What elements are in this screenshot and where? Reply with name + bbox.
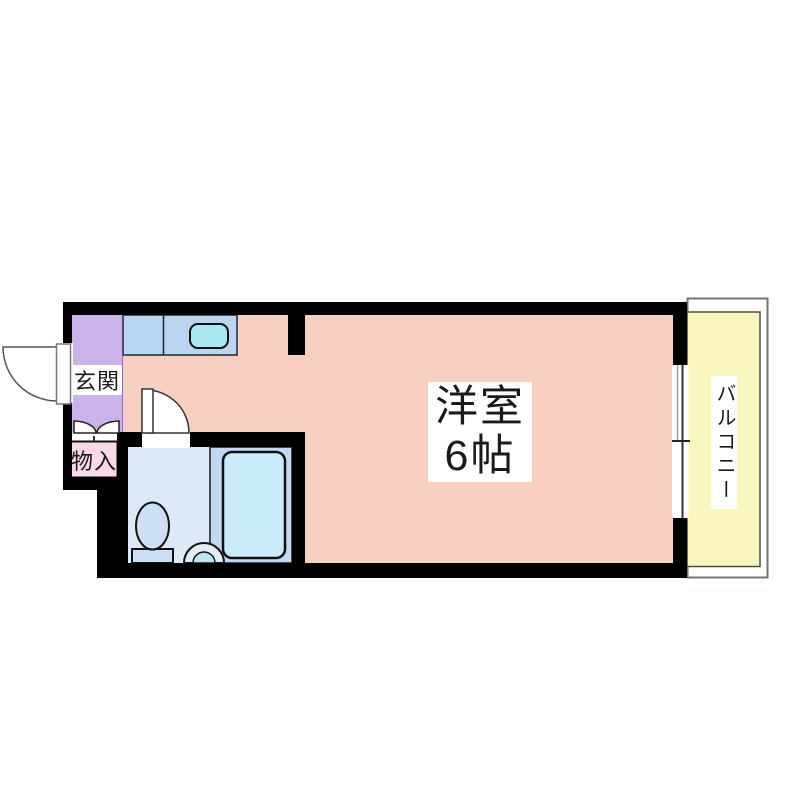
wall-storage-bottom bbox=[63, 477, 128, 490]
main-room-label: 洋室 6帖 bbox=[428, 382, 532, 482]
main-room-label-line2: 6帖 bbox=[445, 432, 516, 481]
wall-bathroom-right bbox=[292, 447, 305, 563]
kitchen bbox=[123, 315, 237, 355]
storage-label: 物入 bbox=[70, 441, 118, 478]
entrance-door-leaf bbox=[57, 344, 71, 404]
bathtub bbox=[223, 452, 285, 558]
kitchen-sink bbox=[190, 324, 228, 348]
main-room-label-line1: 洋室 bbox=[435, 383, 525, 432]
toilet-tank bbox=[132, 549, 173, 563]
bathroom bbox=[128, 447, 292, 563]
balcony-label-text: バルコニー bbox=[711, 383, 737, 503]
floor-plan-page: 玄関 物入 洋室 6帖 バルコニー bbox=[0, 0, 800, 800]
toilet bbox=[136, 503, 169, 550]
wall-top bbox=[63, 302, 687, 315]
wall-bottom bbox=[97, 563, 687, 578]
entrance-door-swing bbox=[3, 347, 57, 401]
storage-label-text: 物入 bbox=[71, 444, 117, 476]
wall-stub-kitchen bbox=[288, 315, 305, 355]
wall-bathroom-left bbox=[97, 490, 128, 578]
outside-patch bbox=[53, 490, 97, 588]
entrance-label: 玄関 bbox=[72, 365, 122, 395]
floor-plan-svg bbox=[0, 0, 800, 800]
bathroom-door-leaf bbox=[142, 389, 153, 433]
balcony-label: バルコニー bbox=[711, 376, 737, 509]
entrance-label-text: 玄関 bbox=[74, 364, 120, 396]
